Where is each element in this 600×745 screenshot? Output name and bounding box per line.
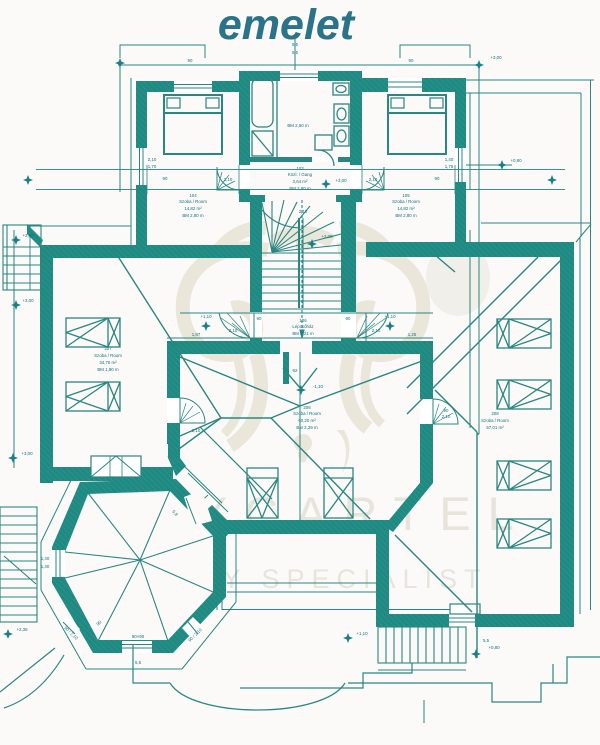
svg-text:14,82 m²: 14,82 m²	[397, 206, 415, 211]
svg-text:-1,10: -1,10	[313, 384, 324, 389]
svg-text:+3,00: +3,00	[21, 451, 33, 456]
svg-text:+3,00: +3,00	[22, 233, 34, 238]
svg-text:BM 2,80 m: BM 2,80 m	[182, 213, 204, 218]
svg-text:1,40: 1,40	[41, 556, 50, 561]
svg-text:2,10: 2,10	[372, 328, 381, 333]
svg-text:BM 2,21 m: BM 2,21 m	[292, 331, 314, 336]
svg-text:1,40: 1,40	[41, 564, 50, 569]
svg-text:60,20 m²: 60,20 m²	[298, 418, 316, 423]
svg-text:+1,10: +1,10	[384, 314, 396, 319]
svg-text:5,5: 5,5	[135, 660, 142, 665]
svg-text:57,01 m²: 57,01 m²	[486, 425, 504, 430]
svg-text:2,10: 2,10	[148, 157, 157, 162]
svg-text:Szoba / Room: Szoba / Room	[94, 353, 122, 358]
svg-text:+3,00: +3,00	[22, 298, 34, 303]
svg-text:2,10: 2,10	[442, 414, 451, 419]
svg-text:14,82 m²: 14,82 m²	[184, 206, 202, 211]
svg-text:103: 103	[296, 166, 304, 171]
svg-text:Szoba / Room: Szoba / Room	[293, 411, 321, 416]
svg-text:+1,10: +1,10	[356, 631, 368, 636]
svg-text:BM 2,80 m: BM 2,80 m	[395, 213, 417, 218]
svg-text:105: 105	[402, 193, 410, 198]
svg-text:Lépcsőház: Lépcsőház	[292, 324, 313, 329]
svg-text:1,87: 1,87	[192, 332, 201, 337]
svg-text:+1,10: +1,10	[200, 314, 212, 319]
svg-text:90×90: 90×90	[132, 634, 145, 639]
svg-text:2,10: 2,10	[229, 328, 238, 333]
svg-text:Szoba / Room: Szoba / Room	[179, 199, 207, 204]
svg-text:92: 92	[293, 368, 298, 373]
svg-text:207: 207	[104, 346, 112, 351]
svg-text:3,64 m²: 3,64 m²	[293, 179, 308, 184]
svg-text:+0,80: +0,80	[488, 645, 500, 650]
svg-text:1,70: 1,70	[148, 164, 157, 169]
svg-text:34,76 m²: 34,76 m²	[99, 360, 117, 365]
svg-text:90: 90	[435, 176, 440, 181]
svg-text:Szoba / Room: Szoba / Room	[392, 199, 420, 204]
svg-text:1,25: 1,25	[408, 332, 417, 337]
svg-text:5,5: 5,5	[292, 50, 299, 55]
svg-text:208: 208	[491, 411, 499, 416]
svg-text:BM 2,80 m: BM 2,80 m	[289, 186, 311, 191]
svg-text:90: 90	[409, 58, 414, 63]
svg-text:+2,36: +2,36	[16, 627, 28, 632]
svg-text:104: 104	[189, 193, 197, 198]
svg-text:+3,00: +3,00	[335, 178, 347, 183]
svg-text:+3,00: +3,00	[490, 55, 502, 60]
svg-text:1,40: 1,40	[445, 157, 454, 162]
svg-text:90: 90	[257, 316, 262, 321]
svg-text:1,75: 1,75	[445, 164, 454, 169]
svg-text:BM 1,90 m: BM 1,90 m	[97, 367, 119, 372]
svg-text:2,10: 2,10	[299, 209, 308, 214]
svg-text:+3,00: +3,00	[321, 234, 333, 239]
svg-text:106: 106	[299, 318, 307, 323]
svg-text:5,5: 5,5	[483, 638, 490, 643]
svg-text:90: 90	[346, 316, 351, 321]
svg-text:emelet: emelet	[218, 1, 356, 49]
svg-text:90: 90	[163, 176, 168, 181]
svg-text:206: 206	[303, 405, 311, 410]
svg-text:2,10: 2,10	[224, 177, 233, 182]
svg-text:90: 90	[444, 408, 449, 413]
svg-text:2,10: 2,10	[369, 177, 378, 182]
svg-text:+0,90: +0,90	[510, 158, 522, 163]
svg-text:Szoba / Room: Szoba / Room	[481, 418, 509, 423]
svg-text:5,5: 5,5	[292, 42, 299, 47]
svg-text:90: 90	[188, 58, 193, 63]
svg-text:BM 2,50 m: BM 2,50 m	[287, 123, 309, 128]
svg-text:Közl. / Gang: Közl. / Gang	[288, 172, 313, 177]
